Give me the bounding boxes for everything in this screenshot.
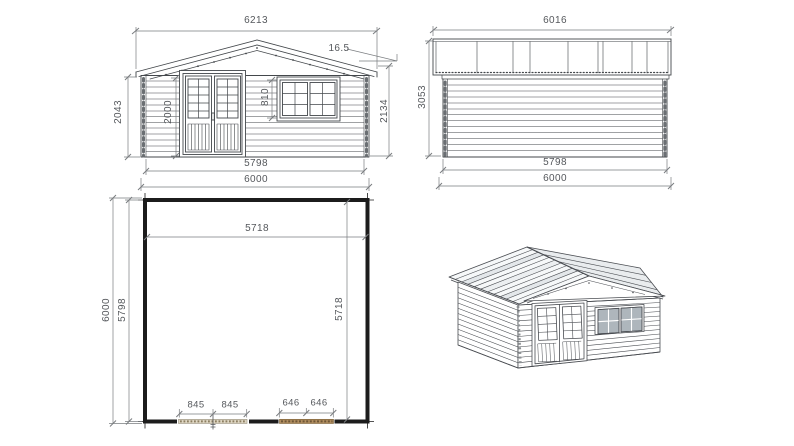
plan-door-opening xyxy=(177,414,249,430)
dim-front-door-height: 2000 xyxy=(164,100,174,124)
dim-plan-window-right: 646 xyxy=(310,398,327,408)
iso-view-linework xyxy=(449,247,665,368)
plan-window-opening xyxy=(279,417,335,426)
dim-side-base-length: 6000 xyxy=(543,174,567,184)
dim-front-overall-width: 6213 xyxy=(244,16,268,26)
dim-plan-door-left: 845 xyxy=(187,400,204,410)
iso-door xyxy=(532,301,587,367)
dim-plan-inner-width-top: 5718 xyxy=(245,224,269,234)
dim-side-roof-length: 6016 xyxy=(543,16,567,26)
side-elevation-linework xyxy=(433,39,671,157)
roof-pitch-symbol xyxy=(347,49,397,61)
dim-front-wall-width: 5798 xyxy=(244,159,268,169)
iso-window xyxy=(595,305,644,335)
dim-front-roof-pitch: 16.5 xyxy=(328,44,349,54)
dim-plan-window-left: 646 xyxy=(282,398,299,408)
dim-front-right-height: 2134 xyxy=(380,99,390,123)
dim-plan-inner-width-right: 5718 xyxy=(335,297,345,321)
dim-plan-outer-depth: 6000 xyxy=(102,298,112,322)
dim-front-left-height: 2043 xyxy=(114,100,124,124)
drawing-linework xyxy=(0,0,794,446)
dim-side-wall-length: 5798 xyxy=(543,158,567,168)
drawing-canvas: 6213 16.5 2043 2000 810 2134 5798 6000 6… xyxy=(0,0,794,446)
dim-front-base-width: 6000 xyxy=(244,175,268,185)
front-door xyxy=(180,71,246,158)
dim-plan-inner-depth: 5798 xyxy=(118,298,128,322)
front-window xyxy=(277,77,340,121)
dim-plan-door-right: 845 xyxy=(221,400,238,410)
dim-side-total-height: 3053 xyxy=(418,85,428,109)
dim-front-window-height: 810 xyxy=(261,88,271,106)
front-elevation-linework xyxy=(136,40,377,157)
